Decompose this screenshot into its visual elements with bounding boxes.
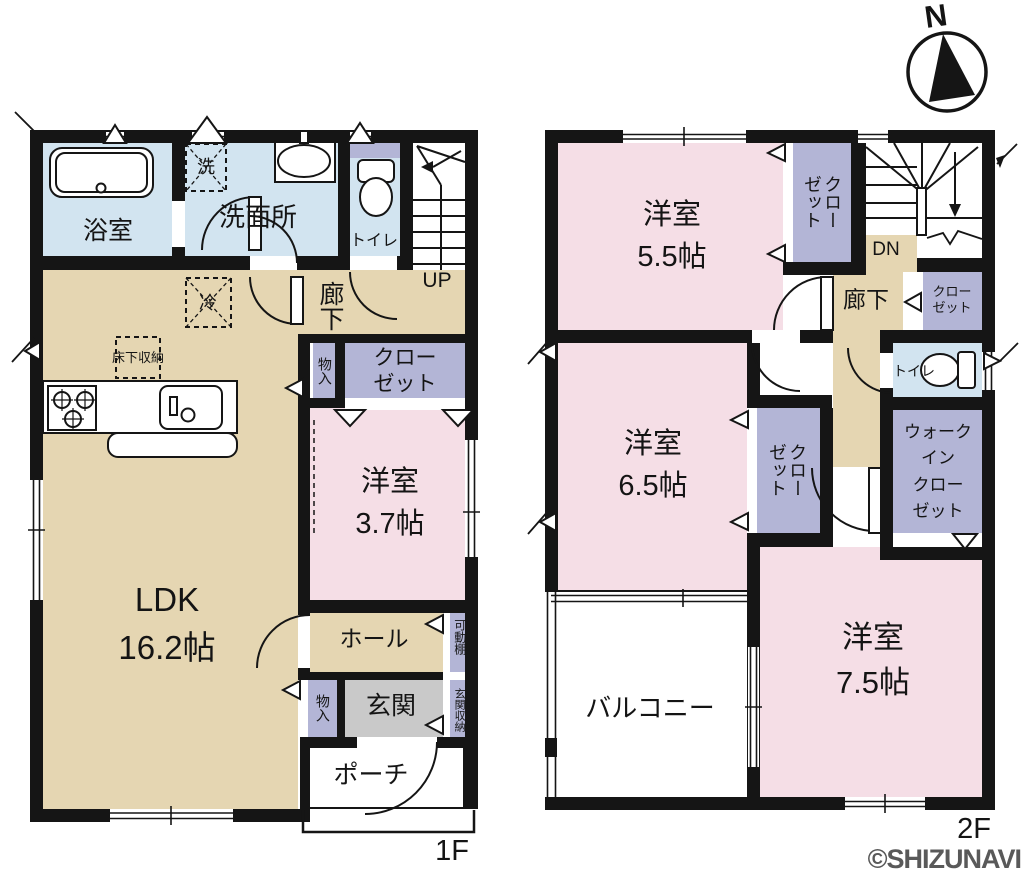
label-hall: ホール bbox=[340, 622, 409, 655]
stairs-2f bbox=[866, 143, 982, 244]
label-bathroom: 浴室 bbox=[83, 213, 133, 249]
label-hallway-2f: 廊下 bbox=[843, 283, 889, 316]
label-stairs-up: UP bbox=[422, 266, 451, 296]
floorplan-page: N 浴室 洗 洗面所 トイレ UP 廊下 物入 クローゼット 冷 床下収納 洋室… bbox=[0, 0, 1024, 877]
porch-outline bbox=[303, 808, 474, 832]
hall-2f-lower bbox=[833, 330, 880, 467]
label-washer: 洗 bbox=[197, 154, 215, 180]
label-stairs-dn: DN bbox=[872, 236, 899, 264]
label-storage-upper: 物入 bbox=[316, 357, 332, 385]
label-balcony: バルコニー bbox=[585, 690, 714, 728]
label-western-room-7-5: 洋室 7.5帖 bbox=[836, 616, 910, 706]
label-entrance: 玄関 bbox=[366, 688, 416, 724]
counter-front bbox=[108, 433, 237, 457]
label-closet-6-5: クローゼット bbox=[767, 438, 807, 502]
label-ldk: LDK 16.2帖 bbox=[118, 576, 215, 672]
label-hallway-1f: 廊下 bbox=[316, 281, 344, 331]
label-toilet-1f: トイレ bbox=[350, 229, 398, 252]
label-toilet-2f: トイレ bbox=[893, 361, 935, 381]
label-western-room-6-5: 洋室 6.5帖 bbox=[618, 423, 687, 507]
label-closet-1f: クローゼット bbox=[370, 345, 440, 396]
label-storage-lower: 物入 bbox=[314, 694, 330, 722]
watermark: ©SHIZUNAVI bbox=[868, 844, 1021, 875]
label-western-room-5-5: 洋室 5.5帖 bbox=[637, 194, 706, 278]
label-porch: ポーチ bbox=[333, 757, 408, 793]
label-closet-5-5: クローゼット bbox=[802, 170, 842, 234]
label-closet-hall: クローゼット bbox=[930, 284, 974, 316]
floor1-label: 1F bbox=[435, 830, 469, 872]
floorplan-graphic bbox=[0, 0, 1024, 877]
label-underfloor-storage: 床下収納 bbox=[112, 350, 164, 366]
label-walk-in-closet: ウォーク イン クロー ゼット bbox=[904, 419, 972, 524]
label-entrance-storage: 玄関収納 bbox=[453, 688, 465, 732]
label-movable-shelf: 可動棚 bbox=[452, 619, 465, 655]
label-washroom: 洗面所 bbox=[219, 199, 297, 237]
label-fridge: 冷 bbox=[199, 290, 217, 316]
label-western-room-3-7: 洋室 3.7帖 bbox=[355, 461, 424, 545]
compass bbox=[908, 33, 986, 111]
stairs-1f bbox=[413, 146, 465, 270]
